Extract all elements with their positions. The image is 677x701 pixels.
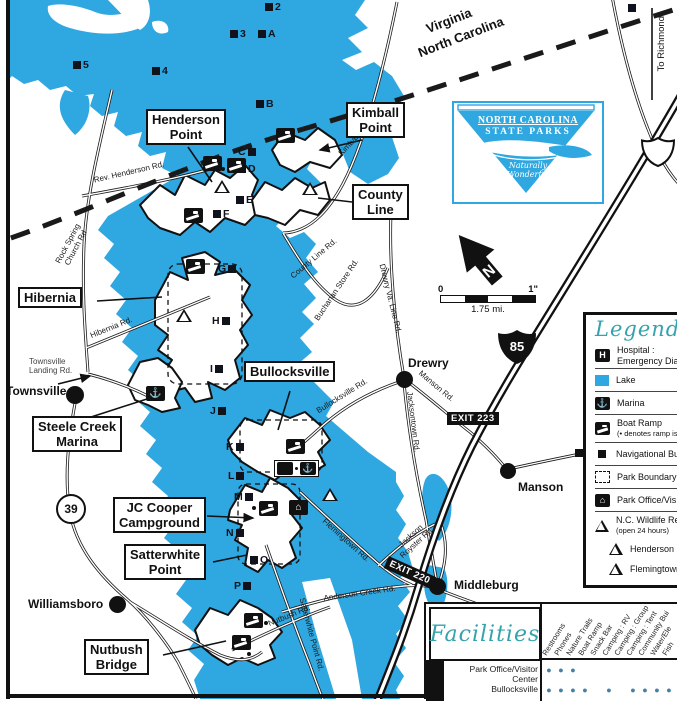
buoy-square: [213, 210, 221, 218]
nav-buoy: 2: [265, 1, 281, 13]
logo-line2: STATE PARKS: [454, 127, 602, 137]
route-39-shield: 39: [56, 494, 86, 524]
ramp-24hr-dot: [252, 506, 256, 510]
boat-ramp-icon: [286, 439, 305, 454]
nav-buoy: O: [250, 554, 268, 566]
buoy-square: [628, 4, 636, 12]
nav-buoy: G: [218, 263, 236, 275]
nav-buoy: I: [210, 363, 223, 375]
callout-nutbush-bridge: Nutbush Bridge: [84, 639, 149, 675]
buoy-square: [236, 443, 244, 451]
nav-buoy: H: [212, 315, 230, 327]
nav-buoy: A: [258, 28, 276, 40]
callout-hibernia: Hibernia: [18, 287, 82, 308]
legend-connector-tick: [575, 449, 583, 457]
scale-bar: 0 1" 1.75 mi.: [438, 284, 538, 315]
town-dot-manson: [500, 463, 516, 479]
legend-item-park-office: ⌂ Park Office/Vis: [595, 488, 677, 511]
nav-buoy: J: [210, 405, 226, 417]
callout-henderson-point: Henderson Point: [146, 109, 226, 145]
legend-title: Legend: [595, 317, 677, 341]
boat-ramp-icon: [595, 422, 610, 435]
nav-buoy: E: [236, 194, 253, 206]
town-dot-drewry: [396, 371, 413, 388]
boat-ramp-icon: [277, 462, 293, 475]
legend-item-hospital: H Hospital :Emergency Dia: [595, 343, 677, 368]
boat-ramp-icon: [227, 158, 246, 173]
facilities-panel: Facilities Restrooms Phones Nature Trail…: [424, 602, 677, 699]
ramp-24hr-dot: [221, 167, 225, 171]
buoy-square: [256, 100, 264, 108]
boat-ramp-icon: [259, 501, 278, 516]
ramp-and-marina-combo-icon: ⚓: [274, 460, 319, 477]
buoy-square: [230, 30, 238, 38]
interstate-shield-outline: [642, 138, 674, 166]
callout-kimball-point: Kimball Point: [346, 102, 405, 138]
legend-item-henderson-ramp: Henderson Po: [609, 539, 677, 559]
lake-swatch-icon: [595, 375, 609, 386]
callout-steele-creek-marina: Steele Creek Marina: [32, 416, 122, 452]
facility-row-dots: ●●●: [543, 665, 675, 675]
buoy-square: [218, 407, 226, 415]
kerr-lake-park-map: { "colors": { "lake": "#2FA7E0", "teal":…: [0, 0, 677, 699]
wildlife-ramp-icon: [322, 488, 338, 501]
nav-buoy: 3: [230, 28, 246, 40]
callout-county-line: County Line: [352, 184, 409, 220]
buoy-square: [250, 556, 258, 564]
buoy-square: [228, 265, 236, 273]
nav-buoy: N: [226, 527, 244, 539]
legend-item-flemingtown-ramp: Flemingtown: [609, 559, 677, 579]
buoy-square: [245, 493, 253, 501]
legend-item-wildlife-ramp: N.C. Wildlife Re(open 24 hours): [595, 511, 677, 539]
nav-buoy: F: [213, 208, 229, 220]
facility-row-label: Bullocksville: [448, 684, 538, 694]
nav-buoy: 5: [73, 59, 89, 71]
scale-zero: 0: [438, 284, 443, 295]
facilities-corner-block: [426, 660, 444, 701]
buoy-square: [236, 472, 244, 480]
facilities-divider-horizontal: [540, 658, 677, 660]
exit-223-badge: EXIT 223: [447, 412, 499, 425]
nav-buoy: K: [226, 441, 244, 453]
nav-buoy: P: [234, 580, 251, 592]
marina-icon: ⚓: [595, 397, 610, 410]
to-richmond-label: To Richmond: [656, 16, 667, 71]
boat-ramp-icon: [203, 156, 222, 171]
facility-row-dots: ●●●●●●●●●: [543, 685, 675, 695]
wildlife-ramp-icon: [214, 180, 230, 193]
legend-item-boat-ramp: Boat Ramp(• denotes ramp is: [595, 414, 677, 442]
legend-panel: Legend H Hospital :Emergency Dia Lake ⚓ …: [583, 312, 677, 588]
town-label-manson: Manson: [518, 480, 563, 494]
marina-icon: ⚓: [146, 386, 165, 401]
ramp-24hr-dot: [247, 652, 251, 656]
nav-buoy: 4: [152, 65, 168, 77]
scale-one-inch: 1": [528, 284, 538, 295]
wildlife-ramp-icon: [609, 563, 623, 575]
callout-satterwhite-point: Satterwhite Point: [124, 544, 206, 580]
callout-bullocksville: Bullocksville: [244, 361, 335, 382]
buoy-square: [222, 317, 230, 325]
nav-buoy: B: [256, 98, 274, 110]
map-border-left: [6, 0, 10, 699]
town-label-drewry: Drewry: [408, 356, 449, 370]
park-office-icon: ⌂: [595, 494, 610, 507]
nav-buoy-icon: [598, 450, 606, 458]
park-office-icon: ⌂: [289, 500, 308, 515]
boat-ramp-icon: [184, 208, 203, 223]
wildlife-ramp-icon: [595, 520, 609, 532]
i85-shield-number: 85: [497, 339, 537, 354]
town-label-middleburg: Middleburg: [454, 578, 519, 592]
buoy-square: [152, 67, 160, 75]
nav-buoy: M: [234, 491, 253, 503]
buoy-square: [236, 196, 244, 204]
i85-shield: 85: [497, 329, 537, 365]
scale-caption: 1.75 mi.: [438, 304, 538, 315]
legend-item-marina: ⚓ Marina: [595, 391, 677, 414]
hospital-icon: H: [595, 349, 610, 362]
wildlife-ramp-icon: [302, 182, 318, 195]
facilities-title: Facilities: [430, 622, 541, 647]
wildlife-ramp-icon: [176, 309, 192, 322]
legend-item-nav-buoy: Navigational Bu: [595, 442, 677, 465]
road-label-townsville-landing: Townsville Landing Rd.: [28, 358, 73, 375]
town-label-townsville: Townsville: [6, 384, 66, 398]
town-label-williamsboro: Williamsboro: [28, 597, 103, 611]
wildlife-ramp-icon: [609, 543, 623, 555]
marina-icon: ⚓: [300, 462, 316, 475]
boat-ramp-icon: [232, 635, 251, 650]
ramp-24hr-dot: [264, 621, 268, 625]
facilities-title-box: Facilities: [429, 607, 541, 661]
scale-bar-segments: [440, 295, 536, 303]
buoy-square: [243, 582, 251, 590]
facility-row-label: Park Office/Visitor Center: [448, 664, 538, 684]
buoy-square: [73, 61, 81, 69]
nav-buoy-unlabeled: [628, 4, 636, 12]
nav-buoy: L: [228, 470, 244, 482]
nav-buoy: C: [238, 146, 256, 158]
logo-tagline: Naturally Wonderful: [454, 161, 602, 179]
callout-jc-cooper-campground: JC Cooper Campground: [113, 497, 206, 533]
buoy-square: [236, 529, 244, 537]
legend-item-lake: Lake: [595, 368, 677, 391]
buoy-square: [248, 148, 256, 156]
boat-ramp-icon: [244, 613, 263, 628]
park-boundary-icon: [595, 471, 610, 483]
buoy-square: [215, 365, 223, 373]
buoy-square: [265, 3, 273, 11]
buoy-square: [258, 30, 266, 38]
ramp-24hr-dot: [295, 467, 298, 470]
boat-ramp-icon: [276, 128, 295, 143]
town-dot-townsville: [66, 386, 84, 404]
logo-line1: NORTH CAROLINA: [454, 115, 602, 126]
nc-state-parks-logo: NORTH CAROLINA STATE PARKS Naturally Won…: [452, 101, 604, 204]
compass-north-arrow: N: [445, 223, 511, 292]
town-dot-williamsboro: [109, 596, 126, 613]
legend-item-park-boundary: Park Boundary: [595, 465, 677, 488]
boat-ramp-icon: [186, 259, 205, 274]
